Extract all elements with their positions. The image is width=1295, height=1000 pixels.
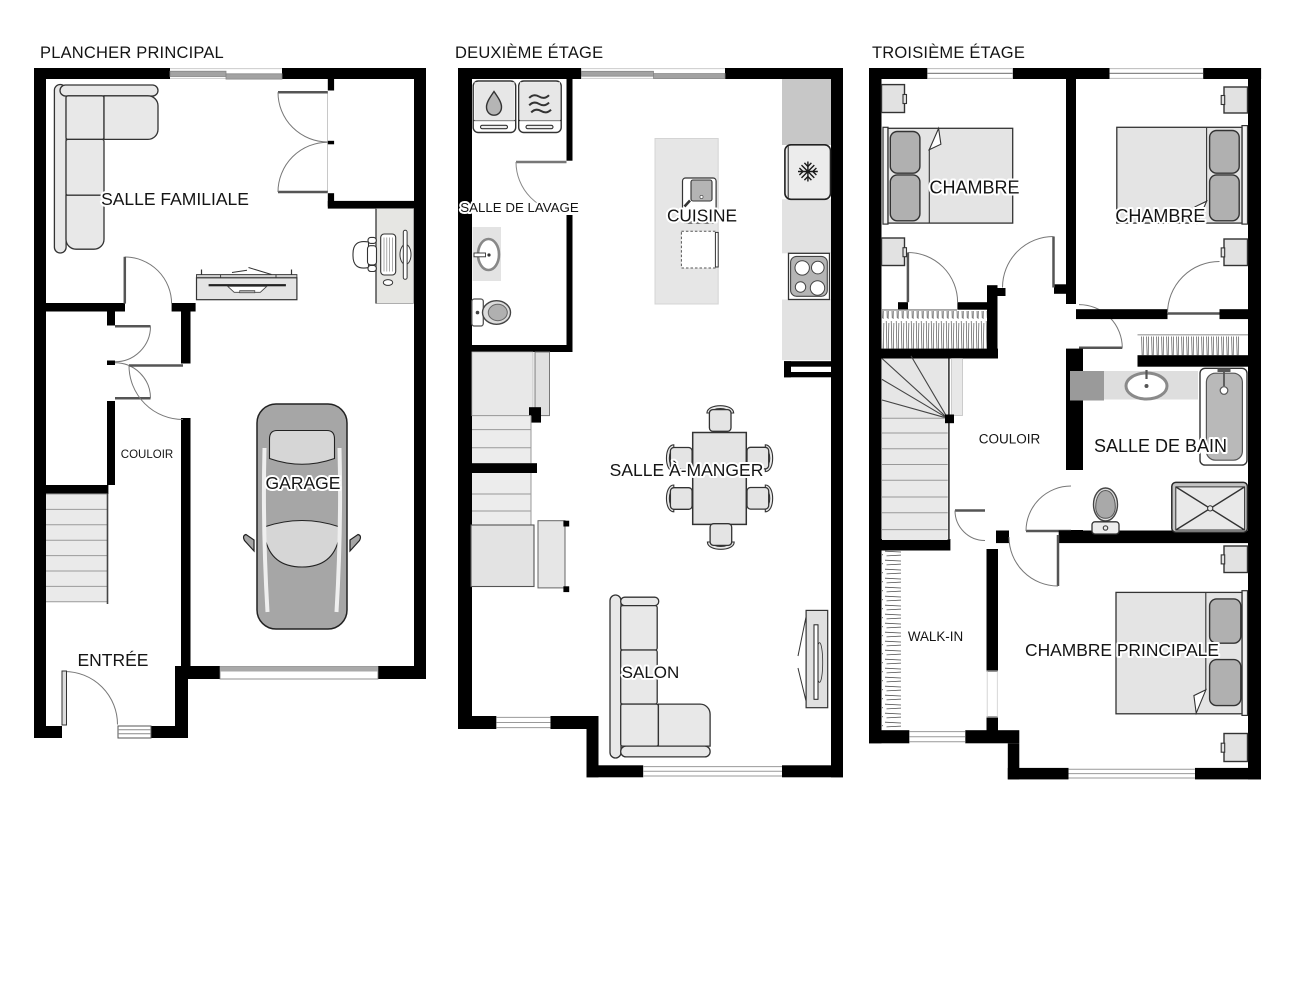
svg-text:COULOIR: COULOIR [121,449,173,461]
svg-text:SALLE À-MANGER: SALLE À-MANGER [610,460,764,480]
svg-text:CUISINE: CUISINE [667,206,737,226]
svg-text:CHAMBRE: CHAMBRE [929,178,1019,198]
svg-text:PLANCHER PRINCIPAL: PLANCHER PRINCIPAL [40,44,224,62]
svg-text:ENTRÉE: ENTRÉE [78,650,149,670]
svg-text:CHAMBRE: CHAMBRE [1115,206,1205,226]
svg-text:SALLE DE BAIN: SALLE DE BAIN [1094,436,1227,456]
svg-text:SALLE DE LAVAGE: SALLE DE LAVAGE [460,200,579,215]
svg-text:DEUXIÈME ÉTAGE: DEUXIÈME ÉTAGE [455,43,603,62]
svg-text:SALLE FAMILIALE: SALLE FAMILIALE [101,189,249,209]
svg-text:COULOIR: COULOIR [979,432,1041,447]
svg-text:SALON: SALON [622,663,680,682]
svg-text:TROISIÈME ÉTAGE: TROISIÈME ÉTAGE [872,43,1025,62]
svg-text:GARAGE: GARAGE [266,473,341,493]
svg-text:CHAMBRE PRINCIPALE: CHAMBRE PRINCIPALE [1025,640,1219,660]
svg-text:WALK-IN: WALK-IN [908,629,963,644]
